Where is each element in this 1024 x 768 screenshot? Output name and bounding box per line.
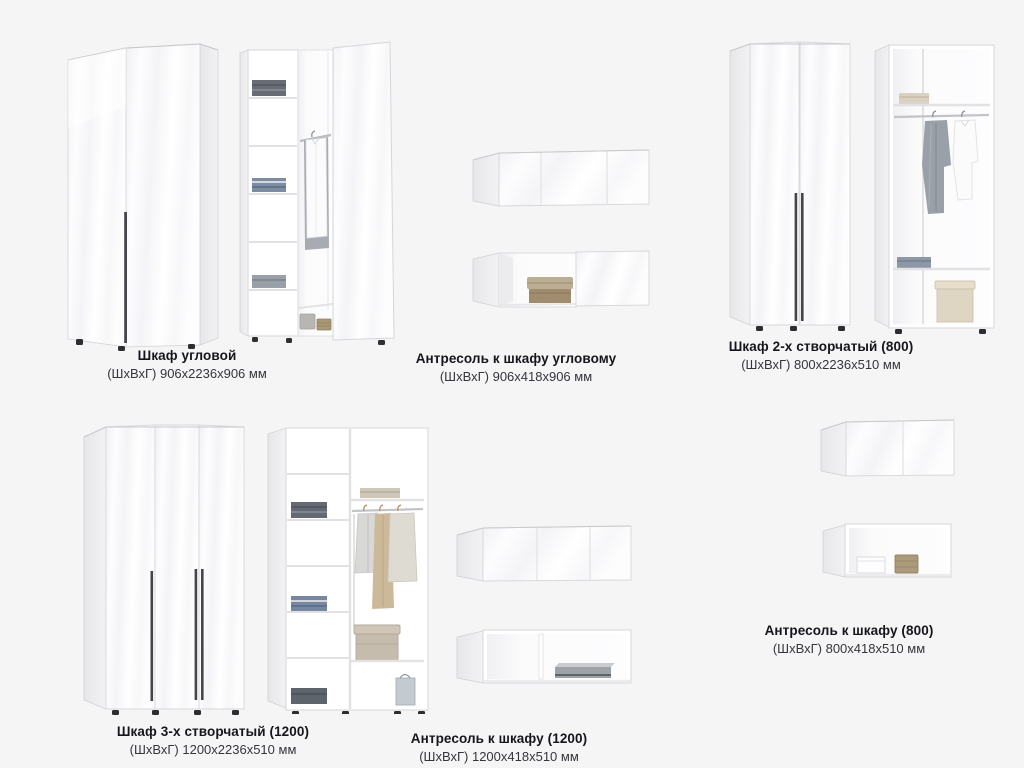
mezzanine-800-closed-image: [819, 417, 956, 482]
corner-mezzanine-closed-image: [471, 148, 651, 211]
wardrobe-3-door-open-image: [266, 422, 431, 714]
product-dimensions: (ШхВхГ) 1200х418х510 мм: [411, 748, 587, 766]
stored-white-box: [857, 557, 885, 573]
storage-box: [935, 281, 975, 322]
folded-clothes: [897, 257, 931, 268]
folded-clothes: [899, 93, 929, 104]
door-handle: [124, 212, 127, 343]
product-dimensions: (ШхВхГ) 800х2236х510 мм: [729, 356, 914, 374]
wicker-basket: [895, 555, 918, 573]
corner-mezzanine-open-image: [471, 249, 651, 312]
paper-bag: [396, 675, 415, 706]
product-dimensions: (ШхВхГ) 800х418х510 мм: [765, 640, 934, 658]
product-title: Антресоль к шкафу угловому: [416, 349, 617, 368]
product-label-corner-wardrobe: Шкаф угловой (ШхВхГ) 906х2236х906 мм: [107, 346, 267, 383]
stored-blanket: [527, 277, 573, 303]
fabric-storage-box: [354, 625, 400, 660]
product-dimensions: (ШхВхГ) 906х2236х906 мм: [107, 365, 267, 383]
corner-wardrobe-closed-image: [62, 36, 222, 351]
catalog-page: Шкаф угловой (ШхВхГ) 906х2236х906 мм Ант…: [0, 0, 1024, 768]
product-dimensions: (ШхВхГ) 906х418х906 мм: [416, 368, 617, 386]
product-label-mezzanine-800: Антресоль к шкафу (800) (ШхВхГ) 800х418х…: [765, 621, 934, 658]
product-title: Шкаф 2-х створчатый (800): [729, 337, 914, 356]
folded-clothes: [360, 488, 400, 498]
product-title: Шкаф угловой: [107, 346, 267, 365]
stored-box: [555, 663, 615, 678]
wardrobe-2-door-open-image: [873, 37, 997, 334]
mezzanine-1200-closed-image: [455, 523, 633, 586]
wardrobe-2-door-closed-image: [728, 35, 852, 333]
product-label-wardrobe-3-door: Шкаф 3-х створчатый (1200) (ШхВхГ) 1200х…: [117, 722, 309, 759]
product-title: Антресоль к шкафу (1200): [411, 729, 587, 748]
mezzanine-1200-open-image: [455, 627, 633, 688]
hanging-shirt: [304, 137, 329, 250]
product-title: Антресоль к шкафу (800): [765, 621, 934, 640]
mezzanine-800-open-image: [821, 521, 953, 582]
product-title: Шкаф 3-х створчатый (1200): [117, 722, 309, 741]
product-label-corner-mezzanine: Антресоль к шкафу угловому (ШхВхГ) 906х4…: [416, 349, 617, 386]
product-label-mezzanine-1200: Антресоль к шкафу (1200) (ШхВхГ) 1200х41…: [411, 729, 587, 766]
product-dimensions: (ШхВхГ) 1200х2236х510 мм: [117, 741, 309, 759]
wardrobe-3-door-closed-image: [82, 419, 246, 717]
product-label-wardrobe-2-door: Шкаф 2-х створчатый (800) (ШхВхГ) 800х22…: [729, 337, 914, 374]
corner-wardrobe-open-image: [238, 40, 398, 348]
